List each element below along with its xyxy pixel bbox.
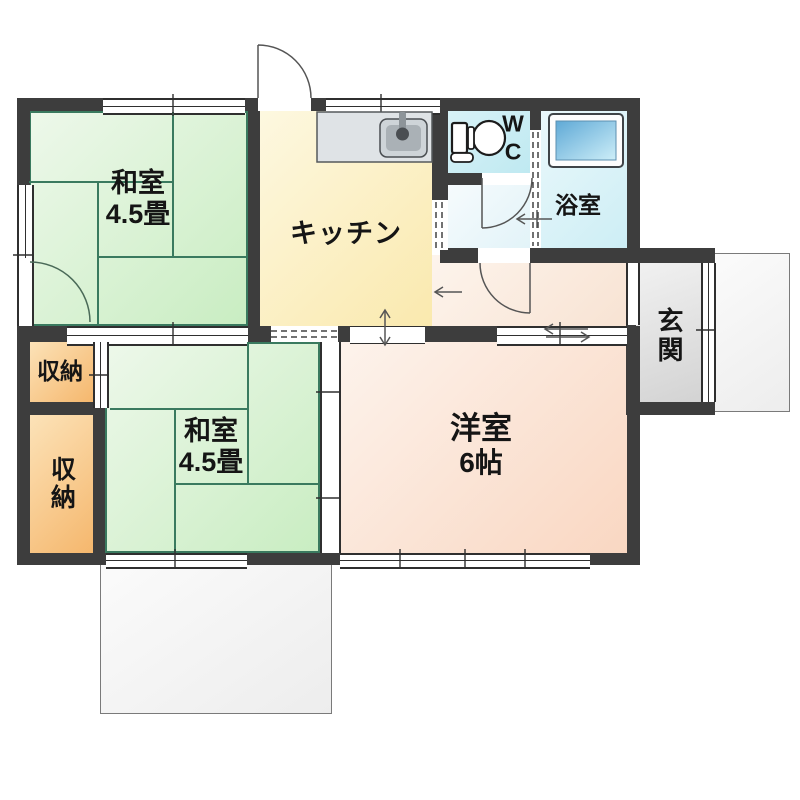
bath-label: 浴室	[555, 192, 601, 218]
washitsu1-name: 和室	[106, 168, 171, 199]
washitsu1-size: 4.5畳	[106, 199, 171, 230]
wc-letter-c: C	[502, 138, 524, 166]
kitchen-label: キッチン	[290, 218, 402, 249]
door-arc-washroom	[480, 263, 530, 313]
washitsu2-name: 和室	[179, 416, 244, 447]
kitchen-sink-icon	[317, 112, 432, 162]
washitsu1-label: 和室 4.5畳	[106, 168, 171, 230]
western-size: 6帖	[450, 447, 512, 479]
storage-lower-label: 収納	[47, 456, 76, 512]
wc-letter-w: W	[502, 110, 524, 138]
bathtub-icon	[549, 114, 623, 167]
western-name: 洋室	[450, 411, 512, 447]
door-arc-wc	[482, 178, 532, 228]
entrance-label: 玄関	[653, 307, 683, 365]
passage-arrows	[380, 210, 589, 345]
fixtures-overlay	[0, 0, 800, 800]
western-label: 洋室 6帖	[450, 411, 512, 479]
door-arc-washitsu1-left	[30, 262, 90, 322]
floor-plan: 和室 4.5畳 キッチン W C 浴室 玄関 収納 収納 和室 4.5畳 洋室 …	[0, 0, 800, 800]
washitsu2-label: 和室 4.5畳	[179, 416, 244, 478]
washitsu2-size: 4.5畳	[179, 447, 244, 478]
door-arc-front-top	[258, 45, 311, 98]
wc-label: W C	[502, 110, 524, 165]
toilet-icon	[451, 121, 505, 162]
storage-upper-label: 収納	[37, 358, 83, 384]
